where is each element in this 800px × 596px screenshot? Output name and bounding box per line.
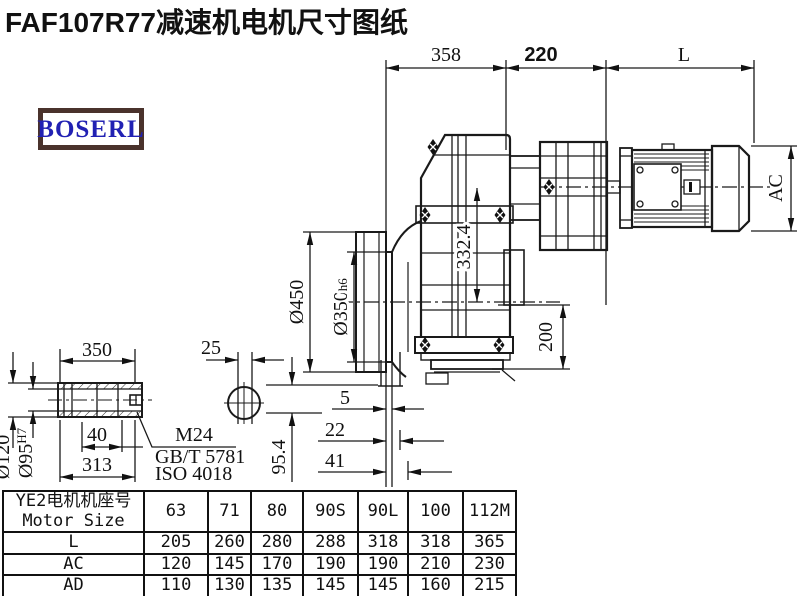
dim-5: 5 [340, 387, 350, 409]
cell: 210 [408, 554, 463, 576]
col-header: 100 [408, 491, 463, 532]
col-header: 80 [251, 491, 303, 532]
dim-40: 40 [87, 424, 107, 446]
dim-313: 313 [82, 454, 112, 476]
dim-D120: Ø120 [0, 435, 14, 479]
cell: 135 [251, 575, 303, 596]
cell: 280 [251, 532, 303, 554]
table-row: YE2电机机座号 Motor Size 63 71 80 90S 90L 100… [3, 491, 516, 532]
cell: 190 [303, 554, 358, 576]
dim-AC: AC [765, 174, 787, 202]
col-header: 90L [358, 491, 408, 532]
cell: 205 [144, 532, 208, 554]
dim-358: 358 [431, 44, 461, 66]
cell: 120 [144, 554, 208, 576]
cell: 230 [463, 554, 516, 576]
table-header-en: Motor Size [4, 512, 143, 532]
dimension-labels: 358 220 L AC Ø450 Ø350h6 332.4 200 5 22 … [0, 44, 787, 485]
col-header: 90S [303, 491, 358, 532]
dim-220: 220 [524, 44, 557, 66]
cell: 160 [408, 575, 463, 596]
dim-D450: Ø450 [286, 280, 308, 324]
cell: 170 [251, 554, 303, 576]
dim-22: 22 [325, 419, 345, 441]
centerline-motor-axis [338, 187, 772, 302]
cell: 190 [358, 554, 408, 576]
table-header-motor-size: YE2电机机座号 Motor Size [3, 491, 144, 532]
table-row: AC 120 145 170 190 190 210 230 [3, 554, 516, 576]
cell: 145 [358, 575, 408, 596]
callout-M24: M24 [175, 424, 213, 446]
cell: 145 [303, 575, 358, 596]
motor-size-table: YE2电机机座号 Motor Size 63 71 80 90S 90L 100… [2, 490, 517, 596]
drawing-page: { "title": "FAF107R77减速机电机尺寸图纸", "logo":… [0, 0, 800, 596]
row-label: AD [3, 575, 144, 596]
dim-D350h6: Ø350h6 [330, 278, 352, 336]
cell: 260 [208, 532, 251, 554]
table-row: AD 110 130 135 145 145 160 215 [3, 575, 516, 596]
row-label: AC [3, 554, 144, 576]
dim-95-4: 95.4 [268, 440, 290, 475]
cell: 215 [463, 575, 516, 596]
cell: 365 [463, 532, 516, 554]
col-header: 112M [463, 491, 516, 532]
cell: 318 [358, 532, 408, 554]
input-adapter [504, 142, 607, 305]
output-flange [356, 221, 421, 386]
col-header: 63 [144, 491, 208, 532]
table-row: L 205 260 280 288 318 318 365 [3, 532, 516, 554]
dim-41: 41 [325, 450, 345, 472]
cell: 145 [208, 554, 251, 576]
dimension-lines-main [266, 60, 797, 487]
callout-ISO4018: ISO 4018 [155, 463, 232, 485]
cell: 110 [144, 575, 208, 596]
dim-332-4: 332.4 [453, 225, 475, 270]
cell: 130 [208, 575, 251, 596]
dim-L: L [678, 44, 690, 66]
row-label: L [3, 532, 144, 554]
table-header-cn: YE2电机机座号 [4, 492, 143, 512]
col-header: 71 [208, 491, 251, 532]
dim-200: 200 [535, 322, 557, 352]
dim-25: 25 [201, 337, 221, 359]
cell: 318 [408, 532, 463, 554]
cell: 288 [303, 532, 358, 554]
dim-350: 350 [82, 339, 112, 361]
